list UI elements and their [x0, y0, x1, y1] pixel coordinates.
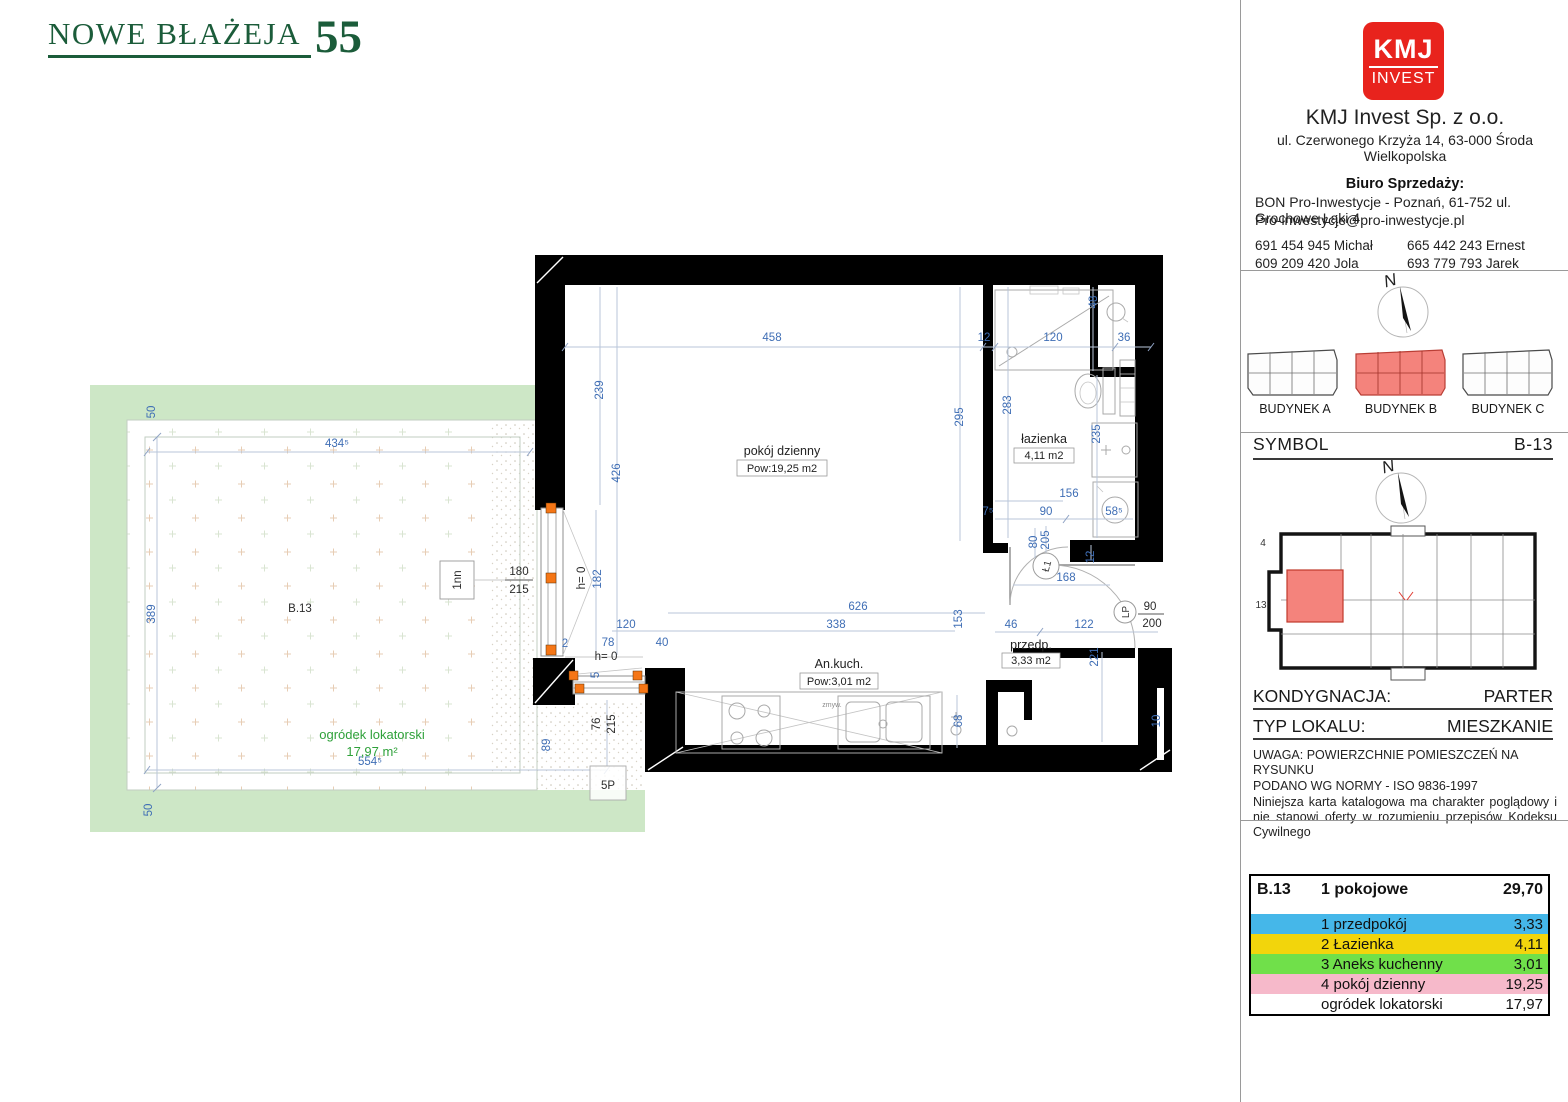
building-c-label: BUDYNEK C [1472, 402, 1545, 416]
dim-label: 12 [1085, 551, 1097, 564]
door-size-width: 90 [1144, 601, 1157, 613]
room-area-kitchen: Pow:3,01 m2 [807, 676, 871, 688]
symbol-row: SYMBOL B-13 [1253, 434, 1553, 460]
floor-overview-plan: N 4 13 [1241, 460, 1568, 684]
room-row-name: 4 pokój dzienny [1251, 976, 1505, 993]
room-row-area: 17,97 [1505, 996, 1548, 1013]
dim-label: 180 [509, 566, 528, 578]
table-spacer [1251, 904, 1548, 914]
building-b-footprint [1356, 350, 1445, 395]
dim-label: 2 [562, 638, 568, 650]
building-a-label: BUDYNEK A [1259, 402, 1331, 416]
total-area: 29,70 [1503, 881, 1548, 899]
dim-label: 76 [591, 718, 603, 731]
disclaimer-paragraph: Niniejsza karta katalogowa ma charakter … [1253, 795, 1557, 841]
kmj-logo-subtext: INVEST [1372, 70, 1436, 88]
unit-kind: 1 pokojowe [1321, 881, 1503, 899]
dim-label: 458 [762, 332, 781, 344]
dim-label: 40 [656, 637, 669, 649]
unit-type-label: TYP LOKALU: [1253, 716, 1366, 738]
dim-label: h= 0 [576, 567, 588, 590]
building-c-footprint [1463, 350, 1552, 395]
catalog-page: NOWE BŁAŻEJA 55 [0, 0, 1568, 1102]
sales-office-label: Biuro Sprzedaży: [1241, 176, 1568, 192]
dim-label: 36 [1118, 332, 1131, 344]
dim-label: 50 [146, 406, 158, 419]
sales-office-email[interactable]: Pro-inwestycje@pro-inwestycje.pl [1255, 212, 1561, 228]
unit-number-label: 13 [1255, 600, 1267, 611]
dim-label: 626 [848, 601, 867, 613]
company-address: ul. Czerwonego Krzyża 14, 63-000 Środa W… [1241, 132, 1568, 164]
building-b-label: BUDYNEK B [1365, 402, 1437, 416]
dim-label: 205 [1040, 530, 1052, 549]
contact-section: KMJ INVEST KMJ Invest Sp. z o.o. ul. Cze… [1241, 0, 1568, 271]
company-name: KMJ Invest Sp. z o.o. [1241, 106, 1568, 130]
area-table-header: B.13 1 pokojowe 29,70 [1251, 876, 1548, 904]
phone-entry: 691 454 945 Michał [1255, 238, 1407, 256]
garden-name: ogródek lokatorski [319, 727, 425, 742]
dim-label: 68 [953, 715, 965, 728]
unit-type-value: MIESZKANIE [1447, 716, 1553, 738]
table-row: ogródek lokatorski 17,97 [1251, 994, 1548, 1014]
dim-label: 221 [1089, 647, 1101, 666]
buildings-section: N BUDYNEK A BUDYNEK B [1241, 270, 1568, 433]
dim-label: 7⁵ [982, 506, 993, 518]
phone-entry: 665 442 243 Ernest [1407, 238, 1559, 256]
dim-label: 168 [1056, 572, 1075, 584]
building-a-footprint [1248, 350, 1337, 395]
dim-label: 46 [1005, 619, 1018, 631]
dim-label: 182 [592, 569, 604, 588]
table-row: 4 pokój dzienny 19,25 [1251, 974, 1548, 994]
disclaimer-line1: UWAGA: POWIERZCHNIE POMIESZCZEŃ NA RYSUN… [1253, 748, 1557, 779]
storey-row: KONDYGNACJA: PARTER [1253, 686, 1553, 710]
room-name-bath: łazienka [1021, 432, 1067, 446]
room-row-name: 2 Łazienka [1251, 936, 1515, 953]
dim-label: 78 [602, 637, 615, 649]
garden-plot-id: B.13 [288, 603, 312, 615]
highlighted-unit [1287, 570, 1343, 622]
disclaimer-line2: PODANO WG NORMY - ISO 9836-1997 [1253, 779, 1557, 794]
dim-label: 80 [1028, 536, 1040, 549]
unit-id: B.13 [1251, 881, 1321, 899]
room-area-living: Pow:19,25 m2 [747, 463, 817, 475]
floor-plan-drawing: 50 434⁵ 389 554⁵ 50 89 B.13 5P ogródek l… [0, 0, 1240, 1102]
dim-label: 434⁵ [325, 438, 349, 450]
room-name-living: pokój dzienny [744, 444, 821, 458]
kmj-invest-logo: KMJ INVEST [1363, 22, 1444, 100]
compass-north-label: N [1380, 460, 1397, 477]
dim-label: 5 [590, 672, 602, 678]
dim-label: 58⁵ [1105, 506, 1123, 518]
room-row-area: 3,33 [1514, 916, 1548, 933]
dim-label: 239 [594, 380, 606, 399]
floor-location-section: N 4 13 [1241, 460, 1568, 684]
kitchen-window [569, 668, 648, 694]
phone-list: 691 454 945 Michał 665 442 243 Ernest 60… [1255, 238, 1559, 274]
dim-label: 235 [1091, 424, 1103, 443]
kmj-logo-text: KMJ [1369, 34, 1437, 68]
dim-label: 215 [606, 714, 618, 733]
table-row: 3 Aneks kuchenny 3,01 [1251, 954, 1548, 974]
dim-label: 120 [1043, 332, 1062, 344]
storey-value: PARTER [1484, 686, 1553, 708]
door-tag-lp: LP [1121, 606, 1132, 619]
room-name-kitchen: An.kuch. [815, 657, 864, 671]
dim-label: 10 [1151, 715, 1163, 728]
dim-label: 426 [611, 463, 623, 482]
room-row-area: 19,25 [1505, 976, 1548, 993]
dim-label: 156 [1059, 488, 1078, 500]
dim-label: 338 [826, 619, 845, 631]
dim-label: 90 [1040, 506, 1053, 518]
room-name-hall: przedp. [1010, 638, 1052, 652]
unit-count-label: 4 [1260, 538, 1266, 549]
dim-label: 50 [143, 804, 155, 817]
storey-label: KONDYGNACJA: [1253, 686, 1391, 708]
terrace-label: 5P [601, 780, 615, 792]
room-row-name: 1 przedpokój [1251, 916, 1514, 933]
table-row: 2 Łazienka 4,11 [1251, 934, 1548, 954]
room-row-name: 3 Aneks kuchenny [1251, 956, 1514, 973]
unit-type-row: TYP LOKALU: MIESZKANIE [1253, 716, 1553, 740]
room-row-area: 3,01 [1514, 956, 1548, 973]
area-table: B.13 1 pokojowe 29,70 1 przedpokój 3,33 … [1249, 874, 1550, 1016]
divider [1241, 820, 1568, 821]
dim-label: 48 [1088, 296, 1100, 309]
room-row-name: ogródek lokatorski [1251, 996, 1505, 1013]
room-area-bath: 4,11 m2 [1025, 450, 1064, 462]
table-row: 1 przedpokój 3,33 [1251, 914, 1548, 934]
dim-label: 122 [1074, 619, 1093, 631]
room-labels: pokój dzienny Pow:19,25 m2 łazienka 4,11… [737, 432, 1136, 709]
window-tag: 1nn [452, 570, 464, 589]
dim-label: 215 [509, 584, 528, 596]
disclaimer: UWAGA: POWIERZCHNIE POMIESZCZEŃ NA RYSUN… [1253, 748, 1557, 841]
info-sidebar: KMJ INVEST KMJ Invest Sp. z o.o. ul. Cze… [1240, 0, 1568, 1102]
compass-north-label: N [1382, 270, 1399, 291]
dim-label: 295 [954, 407, 966, 426]
dim-label: 89 [541, 739, 553, 752]
symbol-value: B-13 [1514, 434, 1553, 458]
compass-icon: N [1376, 460, 1426, 523]
room-area-hall: 3,33 m2 [1011, 655, 1051, 667]
room-row-area: 4,11 [1515, 936, 1548, 953]
dim-label: 389 [146, 604, 158, 623]
dim-label: 120 [616, 619, 635, 631]
dim-label: 12 [978, 332, 991, 344]
door-size-height: 200 [1142, 618, 1161, 630]
sink-label: zmyw. [822, 702, 842, 709]
buildings-overview: N BUDYNEK A BUDYNEK B [1241, 270, 1568, 432]
dim-label: 283 [1002, 395, 1014, 414]
dim-label: h= 0 [595, 651, 618, 663]
symbol-label: SYMBOL [1253, 434, 1329, 458]
compass-icon: N [1378, 270, 1428, 337]
garden-area-value: 17,97 m² [346, 744, 398, 759]
dim-label: 153 [953, 609, 965, 628]
